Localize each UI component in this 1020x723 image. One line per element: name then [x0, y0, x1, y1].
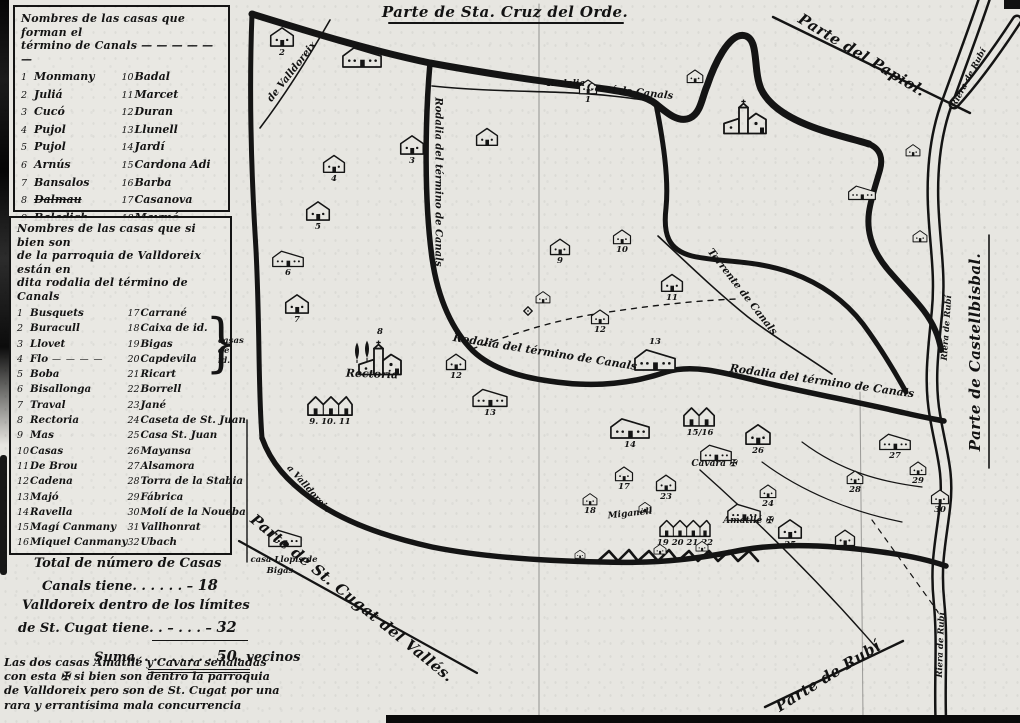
legend-item: 13Majó: [17, 491, 127, 506]
legend-item-number: 30: [127, 507, 140, 518]
legend-canals-title: Nombres de las casas que forman el térmi…: [21, 12, 222, 66]
label-cami-de-canals: Camí de Canals: [586, 82, 673, 102]
house-icon: 30: [930, 488, 950, 514]
legend-item-number: 14: [122, 142, 135, 153]
legend-item: 22Borrell: [127, 383, 245, 398]
label-rodalia-oeste: Rodalia del término de Canals: [433, 97, 444, 266]
totals-line-canals: Canals tiene. . . . . . – 18: [42, 577, 218, 594]
house-number: 9. 10. 11: [309, 418, 350, 426]
legend-canals-col-2: 10Badal11Marcet12Duran13Llunell14Jardí15…: [122, 70, 223, 228]
boundary-northeast: [868, 144, 941, 350]
house-icon: [912, 229, 928, 243]
scan-edge-top-right: [1004, 0, 1020, 9]
legend-item-name: Llunell: [135, 123, 178, 136]
legend-item-name: Capdevila: [140, 353, 196, 365]
legend-item-number: 15: [122, 160, 135, 171]
label-riera-de-rubi: Riera de Rubí: [940, 295, 955, 361]
legend-item-name: Traval: [30, 399, 66, 411]
legend-item-name: Vallhonrat: [140, 521, 200, 533]
legend-item: 30Molí de la Noueba: [127, 506, 245, 521]
rule-under-32: [152, 640, 248, 641]
legend-item-name: Dalmau: [34, 193, 82, 206]
house-icon: 27: [879, 432, 911, 460]
road-east-2: [802, 442, 922, 487]
legend-item: 11Marcet: [122, 88, 223, 106]
label-rodalia-norte: Rodalia: [547, 79, 585, 89]
legend-item-name: Casas: [30, 445, 63, 457]
house-number: 25: [784, 541, 796, 549]
totals-line-3: Valldoreix dentro de los límites: [22, 598, 250, 613]
boundary-mark-icon: [523, 306, 533, 316]
house-number: 27: [889, 452, 901, 460]
legend-item-name: Juliá: [34, 88, 63, 101]
fold-line: [860, 392, 863, 718]
house-icon: 26: [744, 422, 772, 455]
legend-item-number: 16: [17, 537, 30, 548]
legend-item-number: 8: [17, 415, 30, 426]
legend-valldoreix-title-line1: Nombres de las casas que si bien son: [17, 222, 196, 249]
legend-item-number: 4: [21, 125, 34, 136]
legend-item-name: Cadena: [30, 475, 73, 487]
house-icon: 7: [284, 292, 310, 324]
legend-item-number: 5: [17, 369, 30, 380]
totals-valldoreix-value: 32: [216, 619, 236, 636]
legend-item-name: Caseta de St. Juan: [140, 414, 245, 426]
legend-item: 5Boba: [17, 368, 127, 383]
legend-canals-title-line1: Nombres de las casas que forman el: [21, 12, 185, 39]
church-icon: [722, 96, 768, 141]
house-icon: 5: [305, 199, 331, 231]
label-miganell: Miganell: [607, 507, 652, 522]
house-icon: [535, 290, 551, 304]
legend-item: 13Llunell: [122, 123, 223, 141]
legend-item-number: 7: [17, 400, 30, 411]
legend-item-name: Badal: [135, 70, 170, 83]
legend-item: 14Ravella: [17, 506, 127, 521]
legend-item-name: Fábrica: [140, 491, 183, 503]
legend-item-number: 19: [127, 339, 140, 350]
house-icon: [574, 549, 586, 559]
house-number: 5: [315, 223, 321, 231]
label-parte-de-castellbisbal: Parte de Castellbisbal.: [966, 253, 984, 451]
rowhouse-icon: 19 20 21 22: [659, 518, 711, 547]
house-number: 7: [294, 316, 300, 324]
label-rodalia-centro: Rodalia del término de Canals: [452, 331, 638, 373]
scan-blot: [0, 455, 7, 575]
house-icon: 9: [549, 237, 571, 265]
legend-item-number: 7: [21, 178, 34, 189]
legend-item-number: 2: [21, 90, 34, 101]
legend-item-name: Caixa de id.: [140, 322, 207, 334]
house-icon: [695, 540, 709, 552]
house-icon: 29: [909, 460, 927, 485]
legend-item-name: Casa St. Juan: [140, 429, 217, 441]
scan-edge-bottom: [386, 715, 1020, 723]
legend-item-number: 1: [21, 72, 34, 83]
legend-item: 7Bansalos: [21, 176, 122, 194]
house-number: 24: [762, 500, 774, 508]
legend-item-number: 23: [127, 400, 140, 411]
historic-map-scan: 213456791011121389. 10. 1112131415/16261…: [0, 0, 1020, 723]
footnote: Las dos casas Amatllé y Cavara señaladas…: [4, 655, 272, 712]
legend-item: 31Vallhonrat: [127, 521, 245, 536]
house-number: 12: [594, 326, 606, 334]
label-riera-de-rubi: Riera de Rubí: [949, 47, 989, 109]
house-number: 11: [666, 294, 678, 302]
legend-item-number: 6: [17, 384, 30, 395]
legend-item: 32Ubach: [127, 536, 245, 551]
legend-item-number: 32: [127, 537, 140, 548]
legend-item: 11De Brou: [17, 460, 127, 475]
rowhouse-icon: 9. 10. 11: [307, 394, 353, 426]
legend-item: 8Dalmau: [21, 193, 122, 211]
legend-item-number: 13: [122, 125, 135, 136]
legend-item: 14Jardí: [122, 140, 223, 158]
legend-item-number: 28: [127, 476, 140, 487]
legend-item-name: Ricart: [140, 368, 176, 380]
house-icon: 13: [472, 387, 508, 417]
legend-item-number: 18: [127, 323, 140, 334]
footnote-line: Las dos casas Amatllé y Cavara señaladas: [4, 655, 272, 669]
legend-item: 4Pujol: [21, 123, 122, 141]
legend-item-number: 20: [127, 354, 140, 365]
label-casa-llopis-2: Bigas: [267, 566, 294, 576]
house-icon: 4: [322, 153, 346, 183]
legend-item: 24Caseta de St. Juan: [127, 414, 245, 429]
legend-item-number: 12: [17, 476, 30, 487]
legend-item-name: Casanova: [135, 193, 193, 206]
rowhouse-icon: 15/16: [683, 405, 717, 437]
house-icon: [342, 45, 382, 69]
legend-item-number: 9: [17, 430, 30, 441]
house-number: 3: [409, 157, 415, 165]
legend-item-number: 31: [127, 522, 140, 533]
legend-item-name: Ubach: [140, 536, 177, 548]
house-icon: [834, 528, 856, 547]
house-number: 28: [849, 486, 861, 494]
house-icon: [848, 184, 876, 201]
house-number: 9: [557, 257, 563, 265]
legend-item-name: Ravella: [30, 506, 73, 518]
legend-canals-col-1: 1Monmany2Juliá3Cucó4Pujol5Pujol6Arnús7Ba…: [21, 70, 122, 228]
label-rodalia-sureste: Rodalia del término de Canals: [729, 362, 915, 401]
legend-item-number: 3: [17, 339, 30, 350]
legend-item-name: Llovet: [30, 338, 65, 350]
legend-item-name: Barba: [135, 176, 172, 189]
legend-item-number: 29: [127, 492, 140, 503]
legend-item-number: 10: [122, 72, 135, 83]
legend-item-name: Bigas: [140, 338, 172, 350]
house-number: 1: [585, 96, 591, 104]
legend-item: 28Torra de la Stabia: [127, 475, 245, 490]
house-number: 2: [279, 49, 285, 57]
legend-casas-canals: Nombres de las casas que forman el térmi…: [13, 5, 230, 212]
legend-item-name: Jardí: [135, 140, 165, 153]
legend-item-name: Boba: [30, 368, 59, 380]
legend-item-number: 12: [122, 107, 135, 118]
house-icon: 23: [655, 473, 677, 501]
legend-item-number: 4: [17, 354, 30, 365]
label-rectoria: Rectoria: [346, 367, 399, 382]
label-parte-sta-cruz-del-orde: Parte de Sta. Cruz del Orde.: [382, 3, 628, 21]
footnote-line: con esta ✠ si bien son dentro la parroqu…: [4, 669, 272, 683]
legend-item-name: Rectoria: [30, 414, 79, 426]
house-number: 29: [912, 477, 924, 485]
legend-item: 26Mayansa: [127, 445, 245, 460]
legend-item-number: 10: [17, 446, 30, 457]
legend-item-number: 22: [127, 384, 140, 395]
legend-item-number: 25: [127, 430, 140, 441]
house-icon: 13: [634, 338, 676, 372]
house-icon: 3: [399, 133, 425, 165]
legend-item-number: 8: [21, 195, 34, 206]
legend-item-name: Borrell: [140, 383, 181, 395]
legend-item-name: Jané: [140, 399, 166, 411]
legend-item: 12Duran: [122, 105, 223, 123]
legend-item-name: Flo: [30, 353, 48, 365]
house-icon: [686, 68, 704, 84]
legend-item-number: 21: [127, 369, 140, 380]
house-number: 14: [624, 441, 636, 449]
legend-item: 25Casa St. Juan: [127, 429, 245, 444]
legend-item-dashes: — — — —: [48, 355, 103, 365]
legend-item: 23Jané: [127, 399, 245, 414]
legend-item-name: Cucó: [34, 105, 65, 118]
legend-item: 17Casanova: [122, 193, 223, 211]
totals-line-1: Total de número de Casas: [34, 556, 221, 571]
legend-canals-title-line2: término de Canals — — — — — —: [21, 39, 213, 66]
legend-item-name: Busquets: [30, 307, 84, 319]
legend-valldoreix-title-line2: de la parroquia de Valldoreix están en: [17, 249, 201, 276]
legend-item-number: 5: [21, 142, 34, 153]
house-icon: 18: [582, 492, 598, 515]
legend-item-name: Monmany: [34, 70, 95, 83]
legend-item-name: Bansalos: [34, 176, 89, 189]
legend-item-number: 11: [17, 461, 30, 472]
house-icon: [475, 126, 499, 147]
boundary-south: [262, 438, 946, 566]
house-number: 6: [285, 269, 291, 277]
label-parte-del-papiol: Parte del Papiol.: [795, 10, 929, 100]
house-number: 17: [618, 483, 630, 491]
legend-item: 1Monmany: [21, 70, 122, 88]
label-a-valldoreix: a Valldoreix: [284, 464, 331, 515]
legend-item: 4Flo — — — —: [17, 353, 127, 368]
legend-item: 29Fábrica: [127, 491, 245, 506]
legend-item-name: Mas: [30, 429, 54, 441]
house-icon: 25: [777, 517, 803, 549]
house-number: 8: [377, 328, 383, 336]
legend-item: 9Mas: [17, 429, 127, 444]
label-cami-valldoreix: de Valldoreix: [265, 40, 318, 104]
legend-item: 8Rectoria: [17, 414, 127, 429]
legend-item-name: Majó: [30, 491, 59, 503]
tree-icon: [353, 341, 361, 363]
legend-valldoreix-title-line3: dita rodalia del término de Canals: [17, 276, 188, 303]
legend-item: 5Pujol: [21, 140, 122, 158]
legend-item-name: Magí Canmany: [30, 521, 116, 533]
boundary-west: [251, 14, 262, 438]
boundary-rodalia-central: [426, 63, 944, 421]
boundary-zigzag: [598, 550, 758, 561]
legend-item-name: Bisallonga: [30, 383, 91, 395]
legend-item: 16Miquel Canmany: [17, 536, 127, 551]
footnote-line: de Valldoreix pero son de St. Cugat por …: [4, 683, 272, 697]
scan-edge-left: [0, 0, 9, 445]
legend-item-number: 2: [17, 323, 30, 334]
house-icon: 14: [610, 416, 650, 449]
legend-item-name: Buracull: [30, 322, 80, 334]
label-parte-de-rubi: Parte de Rubí: [772, 637, 883, 716]
legend-item: 6Bisallonga: [17, 383, 127, 398]
legend-item-number: 15: [17, 522, 30, 533]
house-number: 26: [752, 447, 764, 455]
legend-item-name: Arnús: [34, 158, 71, 171]
legend-item-name: Marcet: [135, 88, 179, 101]
brace-label: casas de id.: [218, 336, 244, 366]
legend-item-number: 14: [17, 507, 30, 518]
legend-valldoreix-title: Nombres de las casas que si bien son de …: [17, 222, 225, 303]
legend-item: 15Magí Canmany: [17, 521, 127, 536]
legend-item-number: 6: [21, 160, 34, 171]
house-number: 18: [584, 507, 596, 515]
legend-valldoreix-col-1: 1Busquets2Buracull3Llovet4Flo — — — —5Bo…: [17, 307, 127, 552]
legend-item-number: 17: [127, 308, 140, 319]
totals-line-valldoreix: de St. Cugat tiene. . – . . . – 32: [18, 619, 237, 636]
legend-item-number: 16: [122, 178, 135, 189]
house-number: 13: [649, 338, 661, 346]
house-icon: [653, 543, 667, 555]
house-icon: 17: [614, 465, 634, 491]
legend-item-name: Carrané: [140, 307, 186, 319]
legend-item: 6Arnús: [21, 158, 122, 176]
legend-item-number: 24: [127, 415, 140, 426]
house-number: 23: [660, 493, 672, 501]
tree-icon: [363, 339, 371, 361]
footnote-line: rara y errantísima mala concurrencia: [4, 698, 272, 712]
house-icon: 12: [590, 308, 610, 334]
road-east-1: [762, 462, 902, 522]
legend-item: 15Cardona Adi: [122, 158, 223, 176]
legend-item-name: Pujol: [34, 140, 66, 153]
legend-item-number: 17: [122, 195, 135, 206]
house-icon: 11: [660, 272, 684, 302]
legend-item-number: 26: [127, 446, 140, 457]
house-number: 30: [934, 506, 946, 514]
house-icon: 10: [612, 228, 632, 254]
house-number: 19 20 21 22: [657, 539, 713, 547]
house-number: 4: [331, 175, 337, 183]
legend-item: 2Buracull: [17, 322, 127, 337]
legend-item-number: 11: [122, 90, 135, 101]
legend-item: 2Juliá: [21, 88, 122, 106]
label-riera-de-rubi: Riera de Rubí: [935, 612, 947, 678]
legend-item-name: Duran: [135, 105, 173, 118]
road-to-rubi: [700, 470, 880, 652]
legend-item-name: Alsamora: [140, 460, 194, 472]
label-torrente-de-canals: Torrente de Canals: [705, 247, 779, 337]
legend-item-number: 3: [21, 107, 34, 118]
label-casa-cavara: Cavara ✠: [691, 459, 736, 469]
boundary-rodalia-este: [656, 104, 906, 392]
legend-item: 3Cucó: [21, 105, 122, 123]
house-icon: 6: [272, 249, 304, 277]
legend-item: 7Traval: [17, 399, 127, 414]
legend-item: 12Cadena: [17, 475, 127, 490]
house-icon: [905, 143, 921, 157]
house-number: 15/16: [687, 429, 714, 437]
legend-item: 1Busquets: [17, 307, 127, 322]
legend-item: 10Casas: [17, 445, 127, 460]
house-number: 12: [450, 372, 462, 380]
legend-item-number: 13: [17, 492, 30, 503]
house-icon: 12: [445, 352, 467, 380]
legend-item: 27Alsamora: [127, 460, 245, 475]
totals-canals-value: 18: [198, 577, 218, 594]
road-dashed-southeast: [872, 520, 938, 612]
legend-item-name: De Brou: [30, 460, 78, 472]
legend-item-number: 27: [127, 461, 140, 472]
legend-item-name: Molí de la Noueba: [140, 506, 245, 518]
legend-casas-valldoreix: Nombres de las casas que si bien son de …: [9, 216, 232, 555]
legend-item-name: Cardona Adi: [135, 158, 211, 171]
house-icon: 2: [269, 25, 295, 57]
legend-item-name: Pujol: [34, 123, 66, 136]
house-icon: 28: [846, 469, 864, 494]
label-casa-amatlle: Amatllé ✠: [723, 516, 773, 526]
legend-item-name: Torra de la Stabia: [140, 475, 243, 487]
legend-item: 3Llovet: [17, 338, 127, 353]
house-number: 13: [484, 409, 496, 417]
legend-item-name: Miquel Canmany: [30, 536, 127, 548]
house-icon: 24: [759, 483, 777, 508]
legend-item: 10Badal: [122, 70, 223, 88]
house-number: 10: [616, 246, 628, 254]
legend-item: 16Barba: [122, 176, 223, 194]
legend-item-name: Mayansa: [140, 445, 191, 457]
legend-item-number: 1: [17, 308, 30, 319]
